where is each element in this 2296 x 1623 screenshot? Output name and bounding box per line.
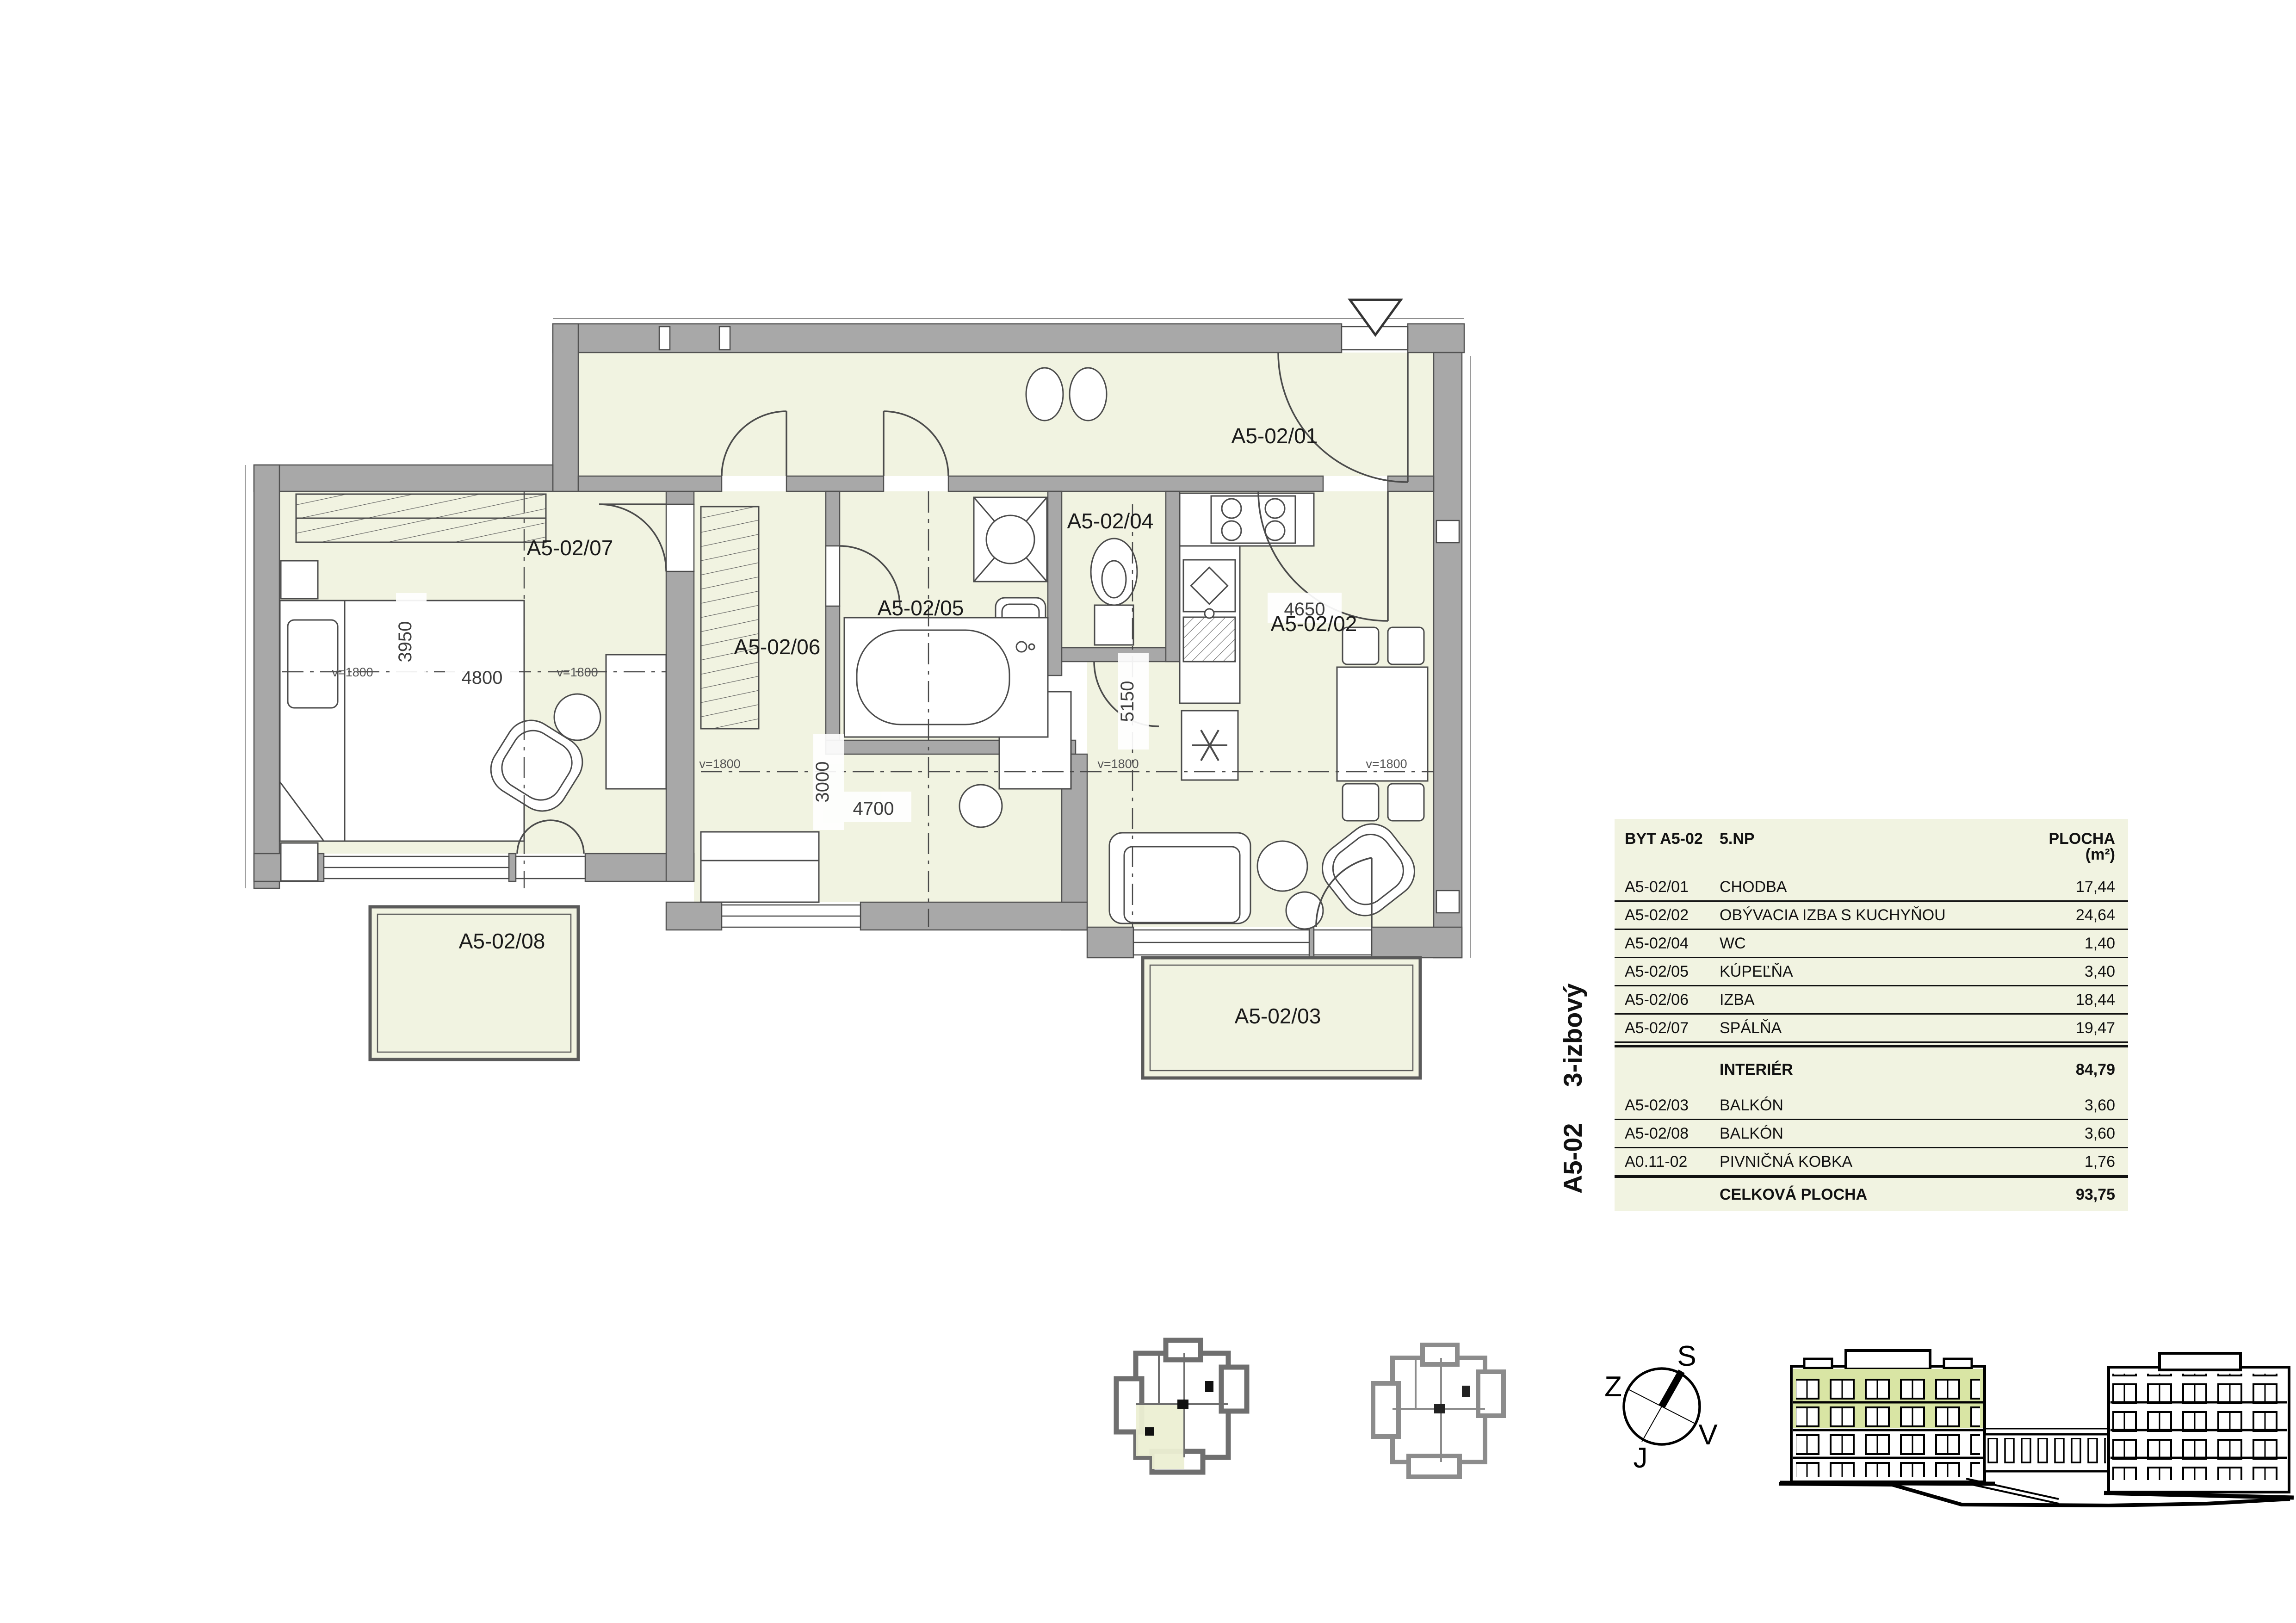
room-label-balcony-left: A5-02/08 xyxy=(459,929,545,953)
dim-izba-width: 4700 xyxy=(853,799,894,819)
row-name: IZBA xyxy=(1720,992,2030,1008)
dim-izba-depth: 3000 xyxy=(812,762,833,803)
row-code: A5-02/08 xyxy=(1625,1126,1720,1141)
room-label-bath: A5-02/05 xyxy=(878,596,964,620)
row-code: A5-02/05 xyxy=(1625,964,1720,979)
room-label-hall: A5-02/01 xyxy=(1232,424,1318,448)
row-area: 93,75 xyxy=(2030,1187,2115,1202)
table-row: A5-02/08 BALKÓN 3,60 xyxy=(1615,1120,2128,1148)
row-code: A5-02/03 xyxy=(1625,1097,1720,1113)
compass-needle-icon xyxy=(1662,1371,1682,1406)
table-row: A0.11-02 PIVNIČNÁ KOBKA 1,76 xyxy=(1615,1148,2128,1178)
room-label-bedroom: A5-02/07 xyxy=(527,536,613,560)
area-table-header: BYT A5-02 5.NP PLOCHA (m²) xyxy=(1615,819,2128,873)
table-row-total: CELKOVÁ PLOCHA 93,75 xyxy=(1615,1178,2128,1211)
key-plan-highlighted xyxy=(1116,1340,1247,1472)
sill-note-4: v=1800 xyxy=(1097,757,1139,771)
row-name: BALKÓN xyxy=(1720,1097,2030,1113)
row-name: CHODBA xyxy=(1720,879,2030,895)
row-area: 24,64 xyxy=(2030,907,2115,923)
table-row: A5-02/07 SPÁLŇA 19,47 xyxy=(1615,1015,2128,1043)
key-plan-plain xyxy=(1373,1345,1504,1477)
unit-side-label: A5-02 3-izbový xyxy=(1557,903,1588,1194)
table-area-title: PLOCHA (m²) xyxy=(2030,831,2115,862)
row-area: 3,60 xyxy=(2030,1126,2115,1141)
row-name: WC xyxy=(1720,935,2030,951)
dim-living-width: 4650 xyxy=(1284,599,1325,619)
row-area: 19,47 xyxy=(2030,1020,2115,1036)
row-code: A5-02/07 xyxy=(1625,1020,1720,1036)
table-floor-title: 5.NP xyxy=(1720,831,2030,847)
sill-note-5: v=1800 xyxy=(1366,757,1407,771)
row-code: A5-02/02 xyxy=(1625,907,1720,923)
row-area: 17,44 xyxy=(2030,879,2115,895)
unit-code: A5-02 xyxy=(1558,1123,1588,1194)
area-table: BYT A5-02 5.NP PLOCHA (m²) A5-02/01 CHOD… xyxy=(1615,819,2128,1211)
compass-rose: S Z V J xyxy=(1604,1340,1718,1474)
row-area: 18,44 xyxy=(2030,992,2115,1008)
row-area: 3,40 xyxy=(2030,964,2115,979)
row-code: A5-02/01 xyxy=(1625,879,1720,895)
table-row: A5-02/04 WC 1,40 xyxy=(1615,930,2128,958)
row-name: INTERIÉR xyxy=(1720,1062,2030,1078)
row-code: A5-02/06 xyxy=(1625,992,1720,1008)
sill-note-2: v=1800 xyxy=(557,665,598,679)
row-area: 3,60 xyxy=(2030,1097,2115,1113)
row-area: 84,79 xyxy=(2030,1062,2115,1078)
elevation-right-building xyxy=(2104,1353,2294,1498)
dim-bedroom-depth: 3950 xyxy=(395,621,415,663)
row-name: SPÁLŇA xyxy=(1720,1020,2030,1036)
compass-south: J xyxy=(1634,1442,1648,1474)
row-code: A0.11-02 xyxy=(1625,1154,1720,1170)
unit-type: 3-izbový xyxy=(1558,983,1588,1087)
elevation-connector xyxy=(1966,1429,2109,1504)
row-area: 1,40 xyxy=(2030,935,2115,951)
table-row: A5-02/06 IZBA 18,44 xyxy=(1615,986,2128,1015)
floorplan-sheet: { "side_label": { "unit": "A5-02", "type… xyxy=(0,0,2296,1623)
row-name: CELKOVÁ PLOCHA xyxy=(1720,1187,2030,1202)
sill-note-3: v=1800 xyxy=(699,757,740,771)
row-area: 1,76 xyxy=(2030,1154,2115,1170)
dim-living-depth: 5150 xyxy=(1117,681,1138,722)
row-name: OBÝVACIA IZBA S KUCHYŇOU xyxy=(1720,907,2030,923)
row-code: A5-02/04 xyxy=(1625,935,1720,951)
sill-note-1: v=1800 xyxy=(332,665,373,679)
compass-west: Z xyxy=(1604,1371,1622,1403)
table-unit-title: BYT A5-02 xyxy=(1625,831,1720,847)
room-label-wc: A5-02/04 xyxy=(1067,509,1154,533)
room-label-balcony-bottom: A5-02/03 xyxy=(1235,1004,1321,1028)
dim-bedroom-width: 4800 xyxy=(462,668,503,688)
row-name: PIVNIČNÁ KOBKA xyxy=(1720,1154,2030,1170)
compass-north: S xyxy=(1677,1340,1696,1372)
table-row-interior-subtotal: INTERIÉR 84,79 xyxy=(1615,1045,2128,1092)
table-row: A5-02/03 BALKÓN 3,60 xyxy=(1615,1092,2128,1120)
room-label-izba: A5-02/06 xyxy=(734,635,821,659)
compass-east: V xyxy=(1698,1419,1718,1451)
table-row: A5-02/01 CHODBA 17,44 xyxy=(1615,873,2128,902)
elevation-left-building xyxy=(1780,1350,1995,1484)
row-name: KÚPEĽŇA xyxy=(1720,964,2030,979)
floor-plan-drawing: A5-02/01 A5-02/02 A5-02/04 A5-02/05 A5-0… xyxy=(0,0,2296,1623)
table-row: A5-02/05 KÚPEĽŇA 3,40 xyxy=(1615,958,2128,986)
table-row: A5-02/02 OBÝVACIA IZBA S KUCHYŇOU 24,64 xyxy=(1615,902,2128,930)
row-name: BALKÓN xyxy=(1720,1126,2030,1141)
